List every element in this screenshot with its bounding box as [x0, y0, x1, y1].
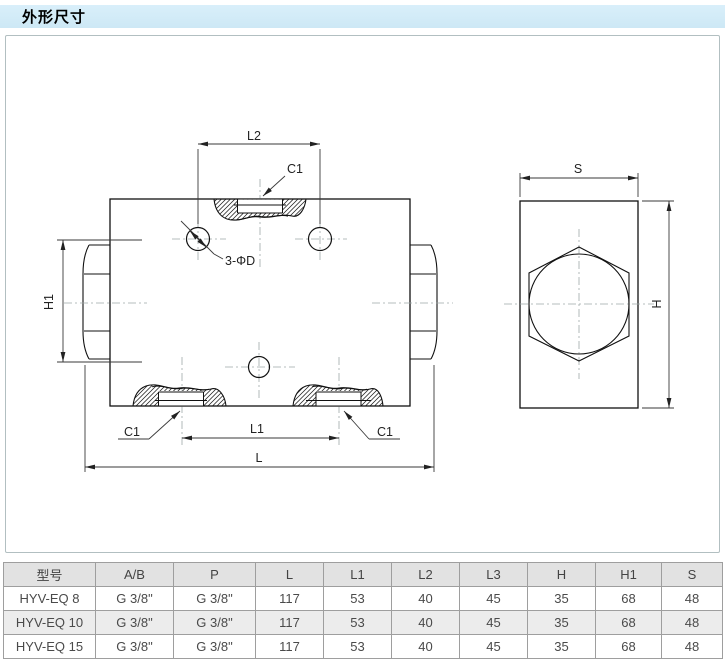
col-header-s: S — [662, 563, 723, 587]
cell-value: 45 — [460, 587, 528, 611]
cell-value: 117 — [256, 587, 324, 611]
table-row: HYV-EQ 15 G 3/8" G 3/8" 117 53 40 45 35 … — [4, 635, 723, 659]
col-header-l2: L2 — [392, 563, 460, 587]
side-view: S H — [504, 162, 674, 408]
col-header-l3: L3 — [460, 563, 528, 587]
cell-value: 53 — [324, 587, 392, 611]
col-header-l: L — [256, 563, 324, 587]
cell-value: 40 — [392, 635, 460, 659]
cell-model: HYV-EQ 15 — [4, 635, 96, 659]
cell-value: G 3/8" — [174, 611, 256, 635]
col-header-h1: H1 — [596, 563, 662, 587]
cell-value: 53 — [324, 611, 392, 635]
dim-label-H: H — [650, 299, 664, 308]
cell-value: 117 — [256, 635, 324, 659]
cell-value: G 3/8" — [174, 635, 256, 659]
dim-label-L2: L2 — [247, 129, 261, 143]
dim-label-L1: L1 — [250, 422, 264, 436]
table-header-row: 型号 A/B P L L1 L2 L3 H H1 S — [4, 563, 723, 587]
valve-dimension-drawing: L2 C1 3-ΦD H1 C1 L1 C1 L — [6, 36, 719, 552]
dim-label-S: S — [574, 162, 582, 176]
cell-value: G 3/8" — [174, 587, 256, 611]
dimension-table: 型号 A/B P L L1 L2 L3 H H1 S HYV-EQ 8 G 3/… — [3, 562, 723, 659]
cell-value: G 3/8" — [96, 611, 174, 635]
cell-value: 40 — [392, 587, 460, 611]
dim-label-L: L — [256, 451, 263, 465]
cell-value: G 3/8" — [96, 587, 174, 611]
front-view: L2 C1 3-ΦD H1 C1 L1 C1 L — [42, 129, 453, 472]
cell-value: 45 — [460, 635, 528, 659]
cell-value: 35 — [528, 635, 596, 659]
section-header-bar: 外形尺寸 — [0, 5, 725, 28]
cell-model: HYV-EQ 10 — [4, 611, 96, 635]
cell-value: 45 — [460, 611, 528, 635]
col-header-p: P — [174, 563, 256, 587]
cell-value: 48 — [662, 635, 723, 659]
dim-label-holes: 3-ΦD — [225, 254, 255, 268]
cell-value: 117 — [256, 611, 324, 635]
section-title: 外形尺寸 — [22, 6, 86, 27]
dim-label-H1: H1 — [42, 294, 56, 310]
col-header-l1: L1 — [324, 563, 392, 587]
dim-label-C1-top: C1 — [287, 162, 303, 176]
cell-value: 35 — [528, 587, 596, 611]
dimension-drawing-panel: L2 C1 3-ΦD H1 C1 L1 C1 L — [5, 35, 720, 553]
col-header-model: 型号 — [4, 563, 96, 587]
cell-value: 68 — [596, 635, 662, 659]
cell-value: 48 — [662, 587, 723, 611]
cell-value: 68 — [596, 611, 662, 635]
col-header-ab: A/B — [96, 563, 174, 587]
table-row: HYV-EQ 8 G 3/8" G 3/8" 117 53 40 45 35 6… — [4, 587, 723, 611]
dim-label-C1-bottom-right: C1 — [377, 425, 393, 439]
cell-model: HYV-EQ 8 — [4, 587, 96, 611]
right-hex-fitting — [410, 245, 437, 359]
cell-value: 53 — [324, 635, 392, 659]
dim-label-C1-bottom-left: C1 — [124, 425, 140, 439]
cell-value: G 3/8" — [96, 635, 174, 659]
left-hex-fitting — [83, 245, 110, 359]
cell-value: 48 — [662, 611, 723, 635]
table-row: HYV-EQ 10 G 3/8" G 3/8" 117 53 40 45 35 … — [4, 611, 723, 635]
cell-value: 35 — [528, 611, 596, 635]
cell-value: 40 — [392, 611, 460, 635]
col-header-h: H — [528, 563, 596, 587]
cell-value: 68 — [596, 587, 662, 611]
